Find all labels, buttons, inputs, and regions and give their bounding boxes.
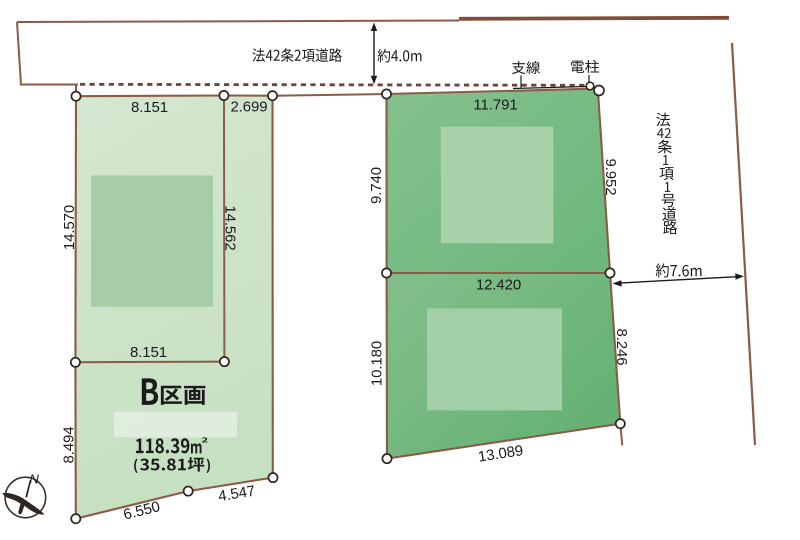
svg-text:9.952: 9.952 (602, 158, 619, 195)
svg-text:8.246: 8.246 (613, 328, 630, 365)
svg-text:N: N (30, 472, 40, 487)
svg-text:8.151: 8.151 (130, 344, 167, 361)
svg-text:11.791: 11.791 (473, 96, 517, 113)
svg-text:9.740: 9.740 (368, 167, 385, 204)
svg-text:10.180: 10.180 (368, 341, 385, 386)
svg-text:14.562: 14.562 (222, 205, 239, 250)
svg-text:8.151: 8.151 (131, 99, 168, 116)
svg-text:14.570: 14.570 (61, 205, 78, 250)
svg-text:8.494: 8.494 (60, 426, 77, 463)
svg-text:12.420: 12.420 (476, 277, 521, 294)
svg-text:2.699: 2.699 (230, 99, 267, 116)
